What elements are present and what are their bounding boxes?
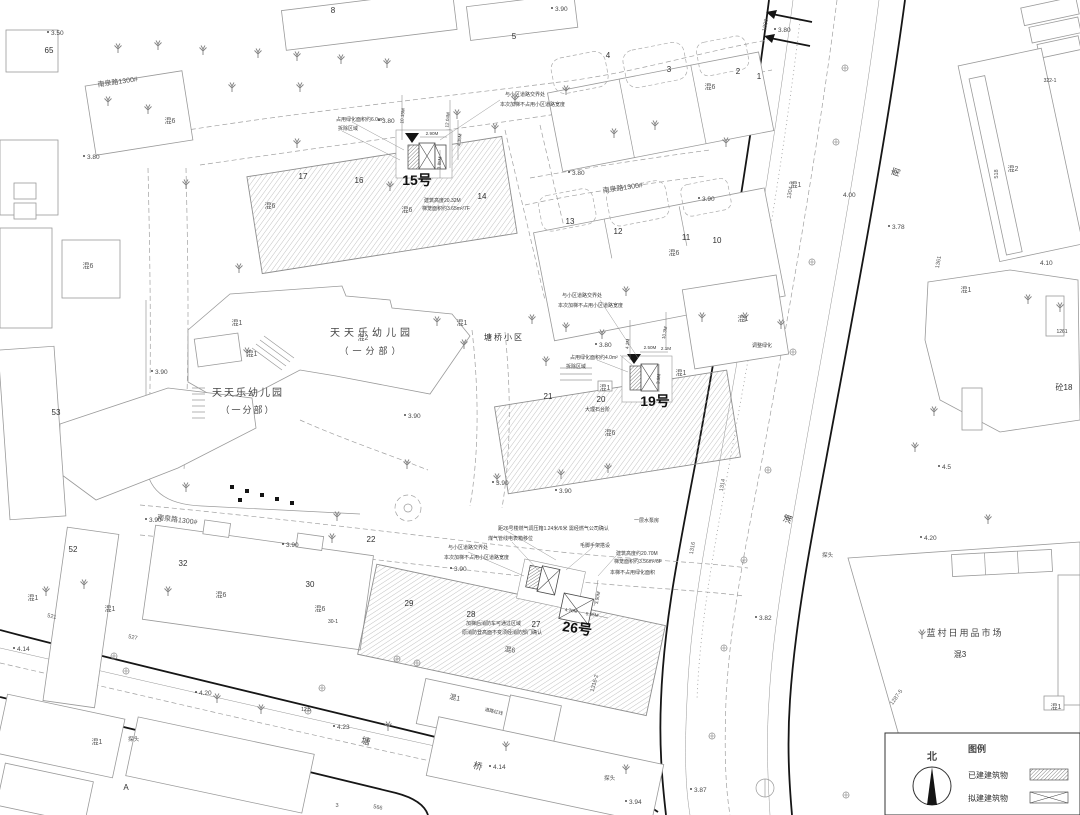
market-label: 蓝村日用品市场 [926, 627, 1003, 638]
elev-390-3: 3.90 [155, 369, 168, 376]
camera-label-1: 探头 [822, 551, 834, 559]
type-h6-4: 混6 [402, 205, 413, 214]
unit-52: 52 [69, 545, 78, 554]
stake-1261: 1261 [1056, 329, 1067, 335]
elev-390-9: 3.90 [286, 542, 299, 549]
unit-3: 3 [667, 65, 672, 74]
unit-13: 13 [566, 217, 575, 226]
elev-390-7: 3.90 [454, 566, 467, 573]
unit-27: 27 [532, 620, 541, 629]
ann19-adjust: 调整绿化 [752, 342, 772, 349]
elev-400: 4.00 [843, 192, 856, 199]
camera-label-2: 探头 [604, 774, 616, 782]
elev-420-2: 4.20 [199, 690, 212, 697]
ann26-gas: 距26号楼燃气调压箱1.24米/6米 需经燃气公司确认 [498, 525, 609, 532]
ann26-height: 建筑高度约20.70M [616, 550, 658, 557]
kindergarten2-branch: （一分部） [220, 404, 275, 415]
elev-390-4: 3.90 [408, 413, 421, 420]
ann19-steps: 大理石台阶 [585, 406, 610, 413]
elev-410-1: 4.10 [1040, 260, 1053, 267]
type-h1-7: 混1 [791, 180, 802, 189]
ann19-m3: 4.2M [625, 338, 631, 349]
ann19-green: 占用绿化面积约4.0m² [570, 354, 618, 361]
elev-390-8: 3.90 [149, 517, 162, 524]
unit-11: 11 [682, 233, 691, 242]
elev-414-1: 4.14 [17, 646, 30, 653]
ann26-pump: 一层水泵房 [634, 517, 659, 524]
ann15-cage: 梯笼面积约3.65m²/7F [422, 205, 470, 212]
hatched-row-19 [495, 356, 741, 494]
unit-30: 30 [306, 580, 315, 589]
stake-1316: 1316 [689, 542, 697, 555]
hatched-row-15 [247, 130, 517, 274]
ann26-nogreen: 本梯不占用绿化面积 [610, 569, 655, 576]
legend-existing-label: 已建建筑物 [968, 770, 1008, 780]
elev-390-2: 3.90 [702, 196, 715, 203]
kindergarten-buildings [58, 286, 470, 521]
type-h1-9: 混1 [1051, 702, 1062, 711]
ann15-height: 建筑高度20.32M [424, 197, 461, 204]
type-h6-7: 混6 [605, 428, 616, 437]
type-h6-5: 混6 [705, 82, 716, 91]
stake-1361: 1361 [935, 256, 943, 269]
unit-29: 29 [405, 599, 414, 608]
type-t18: 砼18 [1056, 382, 1073, 392]
ann15-m5: 10.15M [399, 108, 405, 124]
ann26-scaffold: 毛脚手架搭设 [580, 542, 610, 549]
elev-394: 3.94 [629, 799, 642, 806]
stake-518: 518 [994, 169, 1000, 178]
site-plan-canvas: 天天乐幼儿园 （一分部） 天天乐幼儿园 （一分部） 塘桥小区 蓝村日用品市场 混… [0, 0, 1080, 815]
stake-12-5: 12.5 [301, 707, 311, 713]
nanquan-road-label-2: 南泉路1300# [602, 180, 643, 195]
kindergarten2-name: 天天乐幼儿园 [212, 386, 284, 399]
ann26-m3: 3.90M [594, 591, 601, 605]
ann19-m4: 10.3M [661, 326, 668, 340]
type-h6-2: 混6 [83, 261, 94, 270]
type-h1-13: 混1 [92, 737, 103, 746]
unit-65: 65 [45, 46, 54, 55]
unit-8: 8 [331, 6, 336, 15]
type-h1-5: 混1 [676, 368, 687, 377]
elev-350: 3.50 [51, 30, 64, 37]
elev-380-1: 3.80 [778, 27, 791, 34]
unit-53: 53 [52, 408, 61, 417]
elev-390-5: 3.90 [496, 480, 509, 487]
elev-390-1: 3.90 [555, 6, 568, 13]
type-h2-1: 混2 [1008, 164, 1019, 173]
ann15-road2: 本次加梯不占用小区道路宽度 [500, 101, 565, 108]
ann26-fire1: 加梯后消防车可通过区域 [466, 620, 521, 627]
type-h1-6: 混1 [600, 383, 611, 392]
road-char-tang: 塘 [360, 734, 372, 747]
ann15-m1: 2.90M [426, 131, 439, 136]
legend-panel: 北 图例 已建建筑物 拟建建筑物 [885, 733, 1080, 815]
estate-label: 塘桥小区 [484, 332, 524, 342]
ann26-cage: 梯笼面积约3.56m²/6F [614, 558, 662, 565]
ann26-road1: 与小区道路交界处 [448, 544, 488, 551]
legend-proposed-label: 拟建建筑物 [968, 793, 1008, 803]
ann15-demolish: 拆除区域 [338, 125, 358, 132]
kindergarten1-name: 天天乐幼儿园 [330, 326, 414, 339]
hatched-row-26 [358, 559, 666, 716]
ann19-road1: 与小区道路交界处 [562, 292, 602, 299]
ann26-meter: 煤气管线电表箱移位 [488, 535, 533, 542]
nanquan-road-label-3: 南泉路1300# [157, 513, 198, 527]
unit-32: 32 [179, 559, 188, 568]
unit-28: 28 [467, 610, 476, 619]
elev-414-2: 4.14 [493, 764, 506, 771]
ann19-m2: 2.1M [661, 346, 671, 351]
unit-22: 22 [367, 535, 376, 544]
market-type: 混3 [954, 650, 967, 659]
stake-527: 527 [128, 634, 138, 642]
unit-5: 5 [512, 32, 517, 41]
type-h1-4: 混1 [738, 314, 749, 323]
north-label: 北 [927, 750, 937, 763]
ann19-m5: 3.9M [656, 373, 662, 384]
road-char-nan: 南 [889, 166, 902, 178]
elev-423: 4.23 [337, 724, 350, 731]
type-h1-2: 混1 [247, 349, 258, 358]
stake-1314: 1314 [719, 479, 727, 492]
ann15-green: 占用绿化面积约6.0m² [336, 116, 384, 123]
ann19-m1: 2.50M [644, 345, 657, 350]
ann26-road2: 本次加梯不占用小区道路宽度 [444, 554, 509, 561]
elev-380-4: 3.80 [572, 170, 585, 177]
row-units-1-4 [541, 21, 773, 172]
unit-10: 10 [713, 236, 722, 245]
type-h1-3: 混1 [457, 318, 468, 327]
unit-14: 14 [478, 192, 487, 201]
label-19: 19号 [640, 393, 670, 409]
elev-378: 3.78 [892, 224, 905, 231]
unit-16: 16 [355, 176, 364, 185]
cad-site-plan: 天天乐幼儿园 （一分部） 天天乐幼儿园 （一分部） 塘桥小区 蓝村日用品市场 混… [0, 0, 1080, 815]
unit-A: A [123, 783, 129, 792]
legend-existing-swatch [1030, 769, 1068, 780]
type-h2-2: 混2 [358, 333, 369, 342]
type-h6-9: 混6 [216, 590, 227, 599]
elev-380-2: 3.80 [382, 118, 395, 125]
ann15-m2: 12.04M [444, 112, 450, 128]
type-h6-10: 混6 [315, 604, 326, 613]
unit-12: 12 [614, 227, 623, 236]
kindergarten1-branch: （一分部） [339, 345, 404, 356]
elev-380-5: 3.80 [599, 342, 612, 349]
elev-380-3: 3.80 [87, 154, 100, 161]
type-h1-11: 混1 [105, 604, 116, 613]
elev-420-1: 4.20 [924, 535, 937, 542]
unit-20: 20 [597, 395, 606, 404]
road-char-pu: 浦 [781, 513, 794, 525]
label-15: 15号 [402, 172, 432, 188]
unit-4: 4 [606, 51, 611, 60]
type-h1-8: 混1 [961, 285, 972, 294]
stake-3: 3 [335, 803, 338, 809]
elev-45: 4.5 [942, 464, 951, 471]
stake-30-1: 30-1 [328, 619, 338, 625]
stake-1300: 1300 [762, 19, 770, 32]
type-h6-6: 混6 [669, 248, 680, 257]
type-h1-1: 混1 [232, 318, 243, 327]
ann15-road1: 与小区道路交界处 [505, 91, 545, 98]
unit-17: 17 [299, 172, 308, 181]
type-h6-1: 混6 [165, 116, 176, 125]
ann19-demolish: 拆除区域 [566, 363, 586, 370]
elev-382: 3.82 [759, 615, 772, 622]
ann26-fire2: 原消防登高面不变须经消防部门确认 [462, 629, 542, 636]
ann19-road2: 本次加梯不占用小区道路宽度 [558, 302, 623, 309]
type-h1-12: 混1 [28, 593, 39, 602]
stake-322-1: 322-1 [1044, 78, 1057, 84]
camera-label-3: 探头 [128, 735, 140, 743]
stake-566: 566 [373, 804, 383, 812]
elev-387: 3.87 [694, 787, 707, 794]
unit-1: 1 [757, 72, 762, 81]
unit-2: 2 [736, 67, 741, 76]
type-h6-3: 混6 [265, 201, 276, 210]
unit-21: 21 [544, 392, 553, 401]
elev-390-6: 3.90 [559, 488, 572, 495]
legend-title: 图例 [968, 743, 986, 754]
stake-521: 521 [47, 613, 57, 621]
